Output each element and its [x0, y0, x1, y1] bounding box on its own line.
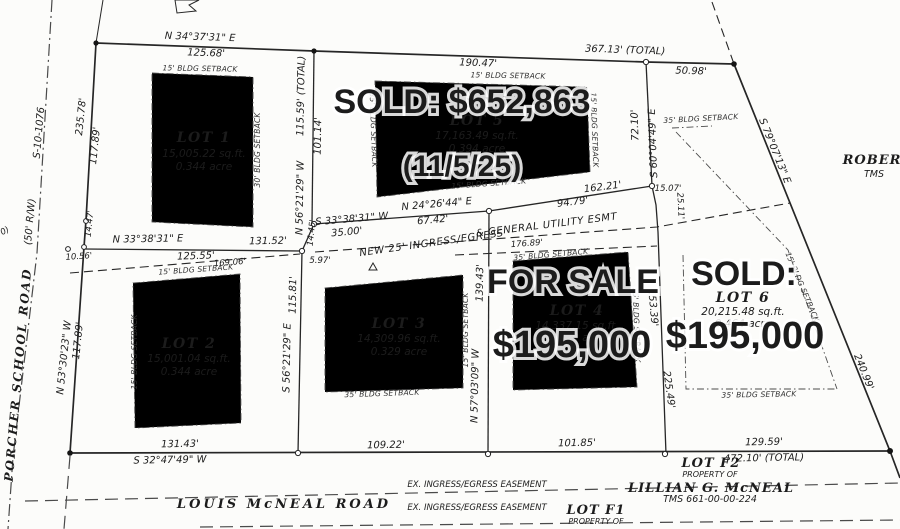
lot6-sold-overlay: SOLD: — [691, 255, 797, 293]
lot2-sqft: 15,001.04 sq.ft. — [147, 353, 230, 365]
survey-node — [295, 450, 300, 455]
survey-node — [662, 451, 667, 456]
dim-11559: 115.59' (TOTAL) — [295, 56, 307, 136]
lot6-price-overlay: $195,000 — [666, 315, 825, 357]
lot5-sold-date-overlay: (11/5/25) — [403, 150, 521, 183]
dim-1447: 14.47' — [84, 210, 97, 238]
dim-597: 5.97' — [309, 256, 330, 266]
dim-23578: 235.78' — [74, 97, 89, 136]
dim-10922: 109.22' — [367, 440, 405, 452]
survey-node — [82, 245, 87, 250]
dim-s562129e: S 56°21'29" E — [281, 322, 293, 392]
dim-5098: 50.98' — [675, 65, 707, 77]
dim-12555: 125.55' — [177, 250, 215, 262]
dim-10114: 101.14' — [313, 117, 325, 155]
dim-9479: 94.79' — [556, 195, 588, 210]
lot3-bottom-setback-label: 35' BLDG SETBACK — [344, 388, 420, 400]
corner-node — [93, 40, 98, 45]
porcher-road-route: S-10-1076 — [32, 107, 47, 160]
dim-1056: 10.56' — [65, 251, 92, 263]
lot2-title: LOT 2 — [161, 336, 217, 352]
lot3-lot4-line — [488, 211, 489, 454]
dim-s790713e: S 79°07'13" E — [756, 117, 793, 186]
lot3-title: LOT 3 — [371, 316, 427, 332]
dim-n562129w: N 56°21'29" W — [294, 160, 306, 236]
lot1-right-setback-label: 30' BLDG SETBACK — [253, 112, 262, 188]
survey-node — [486, 208, 491, 213]
dim-2511: 25.11' — [674, 192, 685, 219]
porcher-road-rw: (50' R/W) — [23, 198, 38, 245]
survey-node — [299, 248, 304, 253]
corner-node — [887, 448, 893, 454]
survey-node — [643, 59, 648, 64]
ex-easement-label-lower: EX. INGRESS/EGRESS EASEMENT — [407, 503, 547, 513]
louis-road-line-2 — [200, 520, 900, 527]
lot2-acre: 0.344 acre — [161, 366, 217, 378]
porcher-road-name: PORCHER SCHOOL ROAD — [2, 267, 35, 483]
lot6-top-setback-label: 35' BLDG SETBACK — [663, 112, 739, 125]
dim-19047: 190.47' — [459, 57, 497, 69]
lot6-setback-tick — [672, 126, 712, 128]
dim-7210: 72.10' — [629, 109, 641, 141]
dim-16221: 162.21' — [583, 180, 622, 196]
adjacent-owner-east-tms: TMS — [864, 169, 884, 180]
dim-11581: 115.81' — [288, 276, 300, 314]
north-arrow-icon — [175, 0, 199, 13]
dim-13143: 131.43' — [161, 439, 199, 451]
lot5-top-setback-label: 15' BLDG SETBACK — [470, 70, 546, 80]
dim-36713: 367.13' (TOTAL) — [585, 44, 666, 58]
corner-node — [67, 450, 73, 456]
lot1-sqft: 15,005.22 sq.ft. — [162, 148, 245, 160]
dim-s324749w: S 32°47'49" W — [133, 454, 207, 466]
lot-f2-tms: TMS 661-00-00-224 — [663, 494, 757, 505]
lot6-bottom-setback-label: 35' BLDG SETBACK — [721, 389, 797, 399]
lot2-left-setback-label: 15' BLDG SETBACK — [130, 314, 139, 390]
dim-6742: 67.42' — [417, 214, 449, 228]
lot-f2-property-of: PROPERTY OF — [682, 470, 738, 479]
louis-road-name: LOUIS McNEAL ROAD — [176, 497, 391, 512]
adjacent-owner-east: ROBER — [842, 153, 900, 168]
dim-n333831e: N 33°38'31" E — [113, 233, 185, 245]
west-tie-dashed — [64, 456, 70, 529]
dim-n570309w: N 57°03'09" W — [469, 348, 481, 424]
lot4-for-sale-overlay: FOR SALE — [487, 263, 659, 301]
lot4-price-overlay: $195,000 — [493, 324, 652, 366]
dim-s600449e: S 60°04'49" E — [647, 107, 660, 178]
dim-22549: 225.49' — [660, 370, 676, 409]
lot1-acre: 0.344 acre — [176, 161, 232, 173]
lot-f1-property-of: PROPERTY OF — [568, 517, 624, 526]
plat-map: N 34°37'31" E 125.68' 190.47' 367.13' (T… — [0, 0, 900, 529]
dim-12959: 129.59' — [745, 437, 783, 449]
lot5-sqft: 17,163.49 sq.ft. — [435, 130, 518, 142]
dim-edge-fragment: 0) — [0, 225, 11, 238]
easement-marker — [369, 263, 377, 270]
lot1-top-setback-label: 15' BLDG SETBACK — [162, 63, 238, 73]
lot-f2-title: LOT F2 — [681, 456, 741, 471]
lot3-right-setback-label: 15' BLDG SETBACK — [461, 292, 470, 368]
dim-n343731e: N 34°37'31" E — [165, 31, 237, 44]
lot3-acre: 0.329 acre — [371, 346, 427, 358]
dim-13943: 139.43' — [475, 264, 487, 302]
dim-3500: 35.00' — [331, 226, 363, 240]
lot-f1-title: LOT F1 — [566, 503, 626, 518]
corner-node — [311, 48, 316, 53]
dim-n242644e: N 24°26'44" E — [401, 196, 473, 213]
dim-12568: 125.68' — [187, 47, 225, 59]
corner-node — [731, 61, 737, 67]
plat-survey-drawing: N 34°37'31" E 125.68' 190.47' 367.13' (T… — [0, 0, 900, 529]
dim-17689: 176.89' — [511, 238, 544, 250]
survey-node — [66, 247, 71, 252]
lot1-title: LOT 1 — [176, 130, 232, 146]
survey-node — [485, 451, 490, 456]
north-tie — [96, 0, 103, 43]
dim-11789-lower: 117.89' — [71, 321, 86, 360]
dim-13152: 131.52' — [249, 236, 287, 248]
ex-easement-label-upper: EX. INGRESS/EGRESS EASEMENT — [407, 480, 547, 490]
lot5-sold-overlay: SOLD: $652,863 — [333, 83, 590, 121]
lot4-title: LOT 4 — [549, 303, 605, 319]
dim-10185: 101.85' — [558, 438, 596, 450]
east-boundary-extension — [712, 2, 734, 64]
dim-24099: 240.99' — [851, 353, 875, 392]
lot3-sqft: 14,309.96 sq.ft. — [357, 333, 440, 345]
